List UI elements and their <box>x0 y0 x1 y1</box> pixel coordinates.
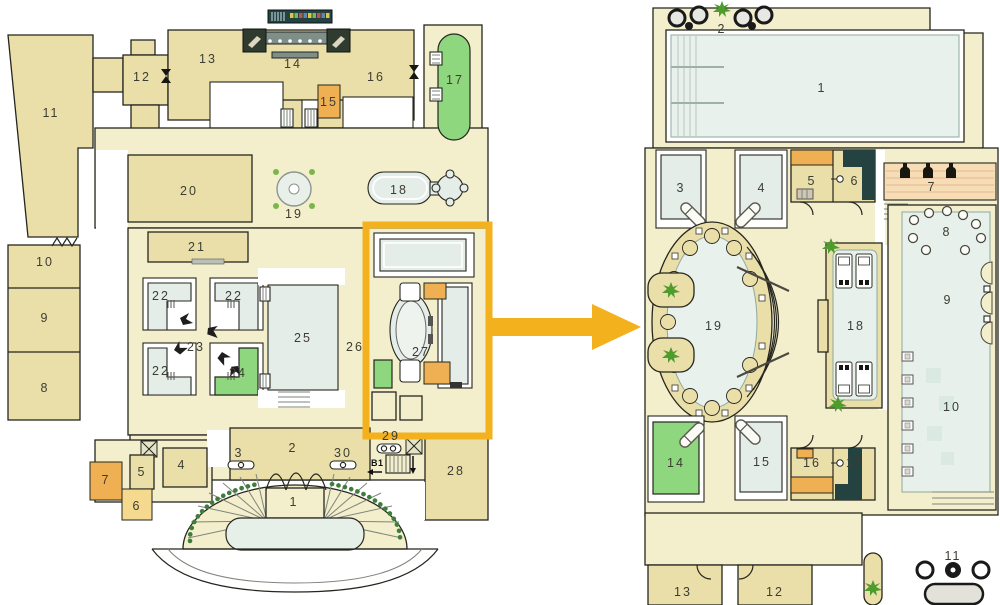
room-label: 9 <box>41 311 50 325</box>
room-label: 14 <box>667 456 685 470</box>
room-label: 30 <box>334 446 352 460</box>
room-label: 17 <box>446 73 464 87</box>
bath-9-fixtures <box>981 262 992 344</box>
room-label: 15 <box>753 455 771 469</box>
room-label: 11 <box>43 106 60 120</box>
room-label: 14 <box>284 57 302 71</box>
room-label: 13 <box>674 585 692 599</box>
bench-icon <box>925 584 983 604</box>
massage-bed-icon <box>836 362 852 396</box>
right-pool-1 <box>666 30 964 142</box>
room-label: 8 <box>943 225 952 239</box>
room-label: 4 <box>178 458 187 472</box>
room-label: 25 <box>294 331 312 345</box>
left-white-slot <box>96 150 128 237</box>
left-white-gap <box>207 430 230 467</box>
left-courtyard-under-16 <box>343 97 413 128</box>
left-room-11-shape <box>8 35 93 237</box>
room-label: 23 <box>187 340 205 354</box>
right-plan: 1 2 3 4 5 6 7 8 9 10 11 12 13 14 15 16 1… <box>645 1 998 605</box>
left-corridor-11-12 <box>93 58 123 92</box>
room-label: 19 <box>285 207 303 221</box>
room-label: 15 <box>320 95 338 109</box>
room-label: 16 <box>803 456 821 470</box>
room-label: 5 <box>138 465 147 479</box>
white-strip <box>258 268 345 285</box>
room-label: 8 <box>41 381 50 395</box>
room-label: 1 <box>290 495 299 509</box>
room-label: 4 <box>758 181 767 195</box>
entry-furniture-11 <box>917 562 989 604</box>
room-label: 18 <box>390 183 408 197</box>
room-label: 13 <box>199 52 217 66</box>
room-label: 18 <box>847 319 865 333</box>
left-plan: B1 1 2 <box>8 10 489 592</box>
right-lower-corridor <box>645 513 862 565</box>
massage-bed-icon <box>856 362 872 396</box>
left-courtyard-under-13 <box>210 82 283 128</box>
room-label: 17 <box>846 456 864 470</box>
room-label: 11 <box>945 549 962 563</box>
organ-icon <box>268 10 332 23</box>
room-label: 6 <box>133 499 142 513</box>
room-label: 19 <box>705 319 723 333</box>
left-pool-18 <box>368 170 468 206</box>
room-label: 3 <box>677 181 686 195</box>
room-label: 6 <box>851 174 860 188</box>
massage-bed-icon <box>856 254 872 288</box>
planter-capsule <box>864 553 882 605</box>
room-label: 20 <box>180 184 198 198</box>
room-label: 2 <box>718 22 727 36</box>
room-label: 7 <box>102 473 111 487</box>
room-label: 10 <box>36 255 54 269</box>
driveway <box>226 518 364 550</box>
room-label: 22 <box>225 289 243 303</box>
room-label: 22 <box>152 364 170 378</box>
room-label: 2 <box>289 441 298 455</box>
zoom-arrow-icon <box>490 304 641 350</box>
left-pool-17 <box>438 34 470 140</box>
elevator-icon <box>406 438 422 454</box>
room-label: 12 <box>766 585 784 599</box>
white-strip <box>258 390 345 408</box>
room-label: 9 <box>944 293 953 307</box>
room-label: 12 <box>133 70 151 84</box>
massage-bed-icon <box>836 254 852 288</box>
room-label: 1 <box>818 81 827 95</box>
room-label: 22 <box>152 289 170 303</box>
stair-skirt <box>152 549 438 592</box>
room-label: 29 <box>382 429 400 443</box>
room-label: 3 <box>235 446 244 460</box>
room-label: 21 <box>188 240 206 254</box>
room-label: 7 <box>928 180 937 194</box>
room-label: 28 <box>447 464 465 478</box>
floorplan-figure: B1 1 2 <box>0 0 1000 605</box>
room-label: 24 <box>229 366 247 380</box>
stage-tab <box>192 259 224 264</box>
room-label: 27 <box>412 345 430 359</box>
right-bath-block <box>888 205 996 510</box>
room-label: 5 <box>808 174 817 188</box>
left-room-12-tab <box>131 40 155 55</box>
room-label: 10 <box>943 400 961 414</box>
room-label: 16 <box>367 70 385 84</box>
b1-label: B1 <box>371 458 384 468</box>
room-label: 26 <box>346 340 364 354</box>
